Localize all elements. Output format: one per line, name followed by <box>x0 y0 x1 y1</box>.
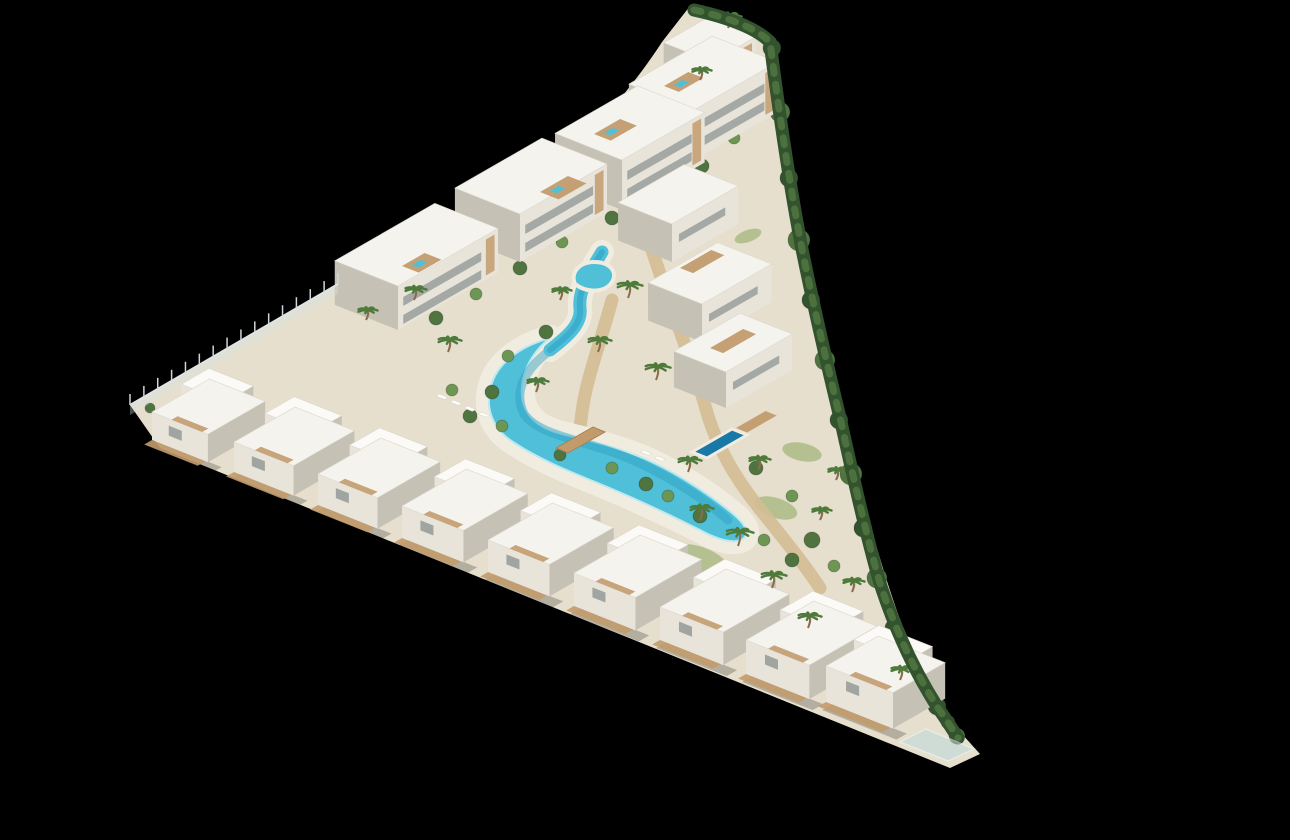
bush <box>513 261 527 275</box>
wood-slat-panel <box>595 170 604 215</box>
wood-slat-panel <box>692 119 701 166</box>
wood-slat-panel <box>486 235 495 276</box>
site-plan-svg <box>0 0 1290 840</box>
bush <box>804 532 820 548</box>
render-canvas <box>0 0 1290 840</box>
bush <box>828 560 840 572</box>
kidney-pool <box>574 262 614 291</box>
bush <box>605 211 619 225</box>
bush <box>496 420 508 432</box>
bush <box>463 409 477 423</box>
bush <box>485 385 499 399</box>
bush <box>606 462 618 474</box>
bush <box>758 534 770 546</box>
bush <box>539 325 553 339</box>
bush <box>502 350 514 362</box>
bush <box>786 490 798 502</box>
bush <box>429 311 443 325</box>
bush <box>662 490 674 502</box>
bush <box>470 288 482 300</box>
bush <box>446 384 458 396</box>
bush <box>785 553 799 567</box>
bush <box>639 477 653 491</box>
